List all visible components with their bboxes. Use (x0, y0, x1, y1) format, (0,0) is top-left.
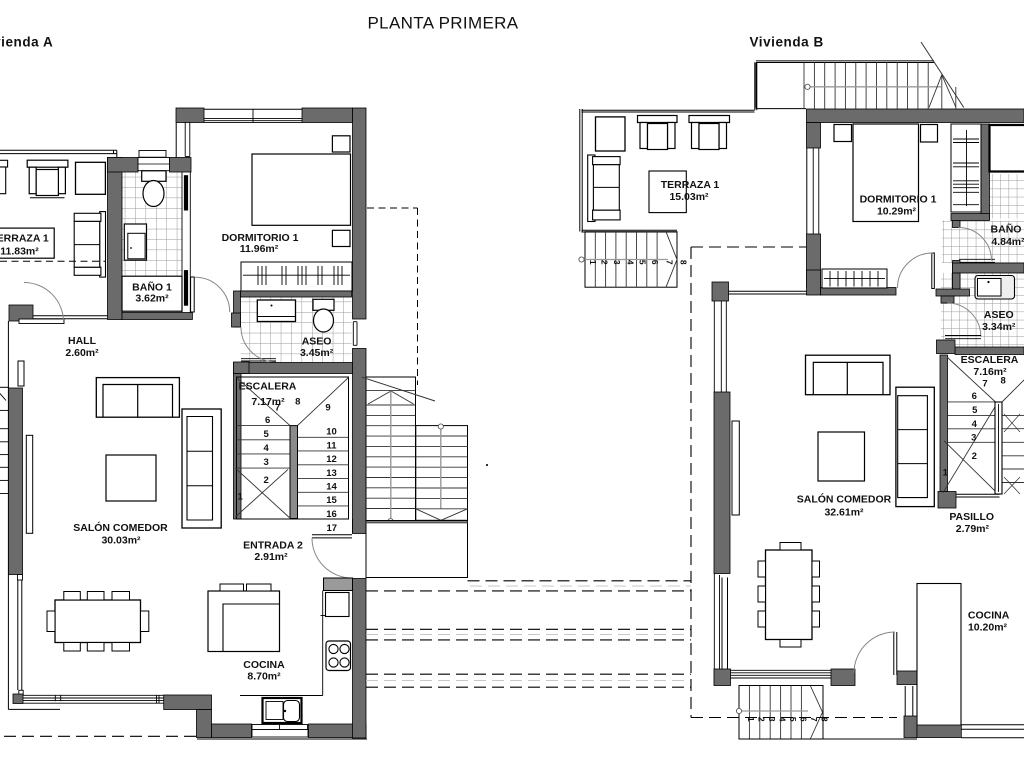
svg-text:1: 1 (588, 260, 598, 265)
svg-text:8.70m²: 8.70m² (247, 671, 281, 683)
svg-text:Vivienda B: Vivienda B (750, 35, 824, 50)
svg-text:HALL: HALL (68, 335, 97, 347)
svg-text:ESCALERA: ESCALERA (239, 381, 297, 393)
svg-text:9: 9 (325, 403, 330, 414)
svg-text:3.62m²: 3.62m² (135, 293, 169, 305)
svg-text:4.84m²: 4.84m² (991, 236, 1024, 248)
svg-text:32.61m²: 32.61m² (824, 507, 864, 519)
svg-text:TERRAZA 1: TERRAZA 1 (661, 179, 720, 191)
svg-text:SALÓN COMEDOR: SALÓN COMEDOR (73, 521, 168, 534)
svg-text:8: 8 (295, 397, 300, 408)
svg-text:2.91m²: 2.91m² (254, 551, 288, 563)
svg-text:6: 6 (265, 415, 270, 426)
svg-text:5: 5 (972, 405, 978, 416)
svg-text:3: 3 (264, 457, 269, 468)
svg-text:PASILLO: PASILLO (949, 511, 994, 523)
svg-text:2: 2 (600, 260, 610, 265)
svg-text:2.60m²: 2.60m² (65, 347, 99, 359)
svg-text:7: 7 (275, 403, 280, 414)
svg-text:1: 1 (238, 492, 244, 503)
svg-text:17: 17 (327, 523, 338, 534)
svg-text:2: 2 (264, 475, 269, 486)
svg-text:14: 14 (326, 482, 337, 493)
svg-text:6: 6 (972, 391, 977, 402)
svg-text:8: 8 (678, 260, 688, 265)
svg-text:13: 13 (326, 468, 337, 479)
svg-text:10.20m²: 10.20m² (968, 622, 1008, 634)
svg-text:SALÓN COMEDOR: SALÓN COMEDOR (797, 493, 892, 506)
svg-text:ASEO: ASEO (302, 336, 332, 348)
svg-text:4: 4 (972, 419, 978, 430)
svg-text:15.03m²: 15.03m² (669, 191, 709, 203)
svg-text:2: 2 (972, 451, 977, 462)
svg-text:12: 12 (326, 454, 337, 465)
svg-text:5: 5 (264, 429, 270, 440)
svg-text:4: 4 (264, 443, 270, 454)
svg-text:3: 3 (971, 432, 976, 443)
svg-text:30.03m²: 30.03m² (101, 535, 141, 547)
svg-text:6: 6 (650, 260, 660, 265)
svg-text:3: 3 (612, 260, 622, 265)
svg-text:1: 1 (943, 468, 949, 479)
svg-text:ENTRADA 2: ENTRADA 2 (243, 540, 303, 552)
svg-text:Vivienda A: Vivienda A (0, 35, 53, 50)
svg-text:7: 7 (982, 378, 987, 389)
svg-text:3.45m²: 3.45m² (300, 347, 334, 359)
svg-text:16: 16 (326, 509, 337, 520)
svg-text:15: 15 (326, 495, 337, 506)
svg-text:PLANTA PRIMERA: PLANTA PRIMERA (367, 14, 518, 33)
svg-text:11: 11 (326, 440, 337, 451)
svg-text:ESCALERA: ESCALERA (961, 354, 1019, 366)
svg-text:8: 8 (1001, 376, 1006, 387)
svg-text:ASEO: ASEO (984, 309, 1014, 321)
svg-text:10: 10 (326, 427, 337, 438)
svg-text:11.96m²: 11.96m² (240, 243, 279, 255)
svg-text:10.29m²: 10.29m² (877, 206, 917, 218)
svg-text:5: 5 (638, 260, 648, 265)
svg-text:TERRAZA 1: TERRAZA 1 (0, 233, 49, 245)
svg-text:COCINA: COCINA (243, 659, 285, 671)
svg-text:11.83m²: 11.83m² (0, 246, 39, 258)
svg-text:BAÑO: BAÑO (991, 223, 1022, 236)
svg-text:3.34m²: 3.34m² (982, 321, 1016, 333)
svg-text:COCINA: COCINA (968, 610, 1010, 622)
svg-text:7: 7 (665, 260, 675, 265)
svg-text:2.79m²: 2.79m² (956, 523, 990, 535)
svg-text:DORMITORIO 1: DORMITORIO 1 (860, 194, 937, 206)
svg-text:4: 4 (625, 260, 635, 265)
